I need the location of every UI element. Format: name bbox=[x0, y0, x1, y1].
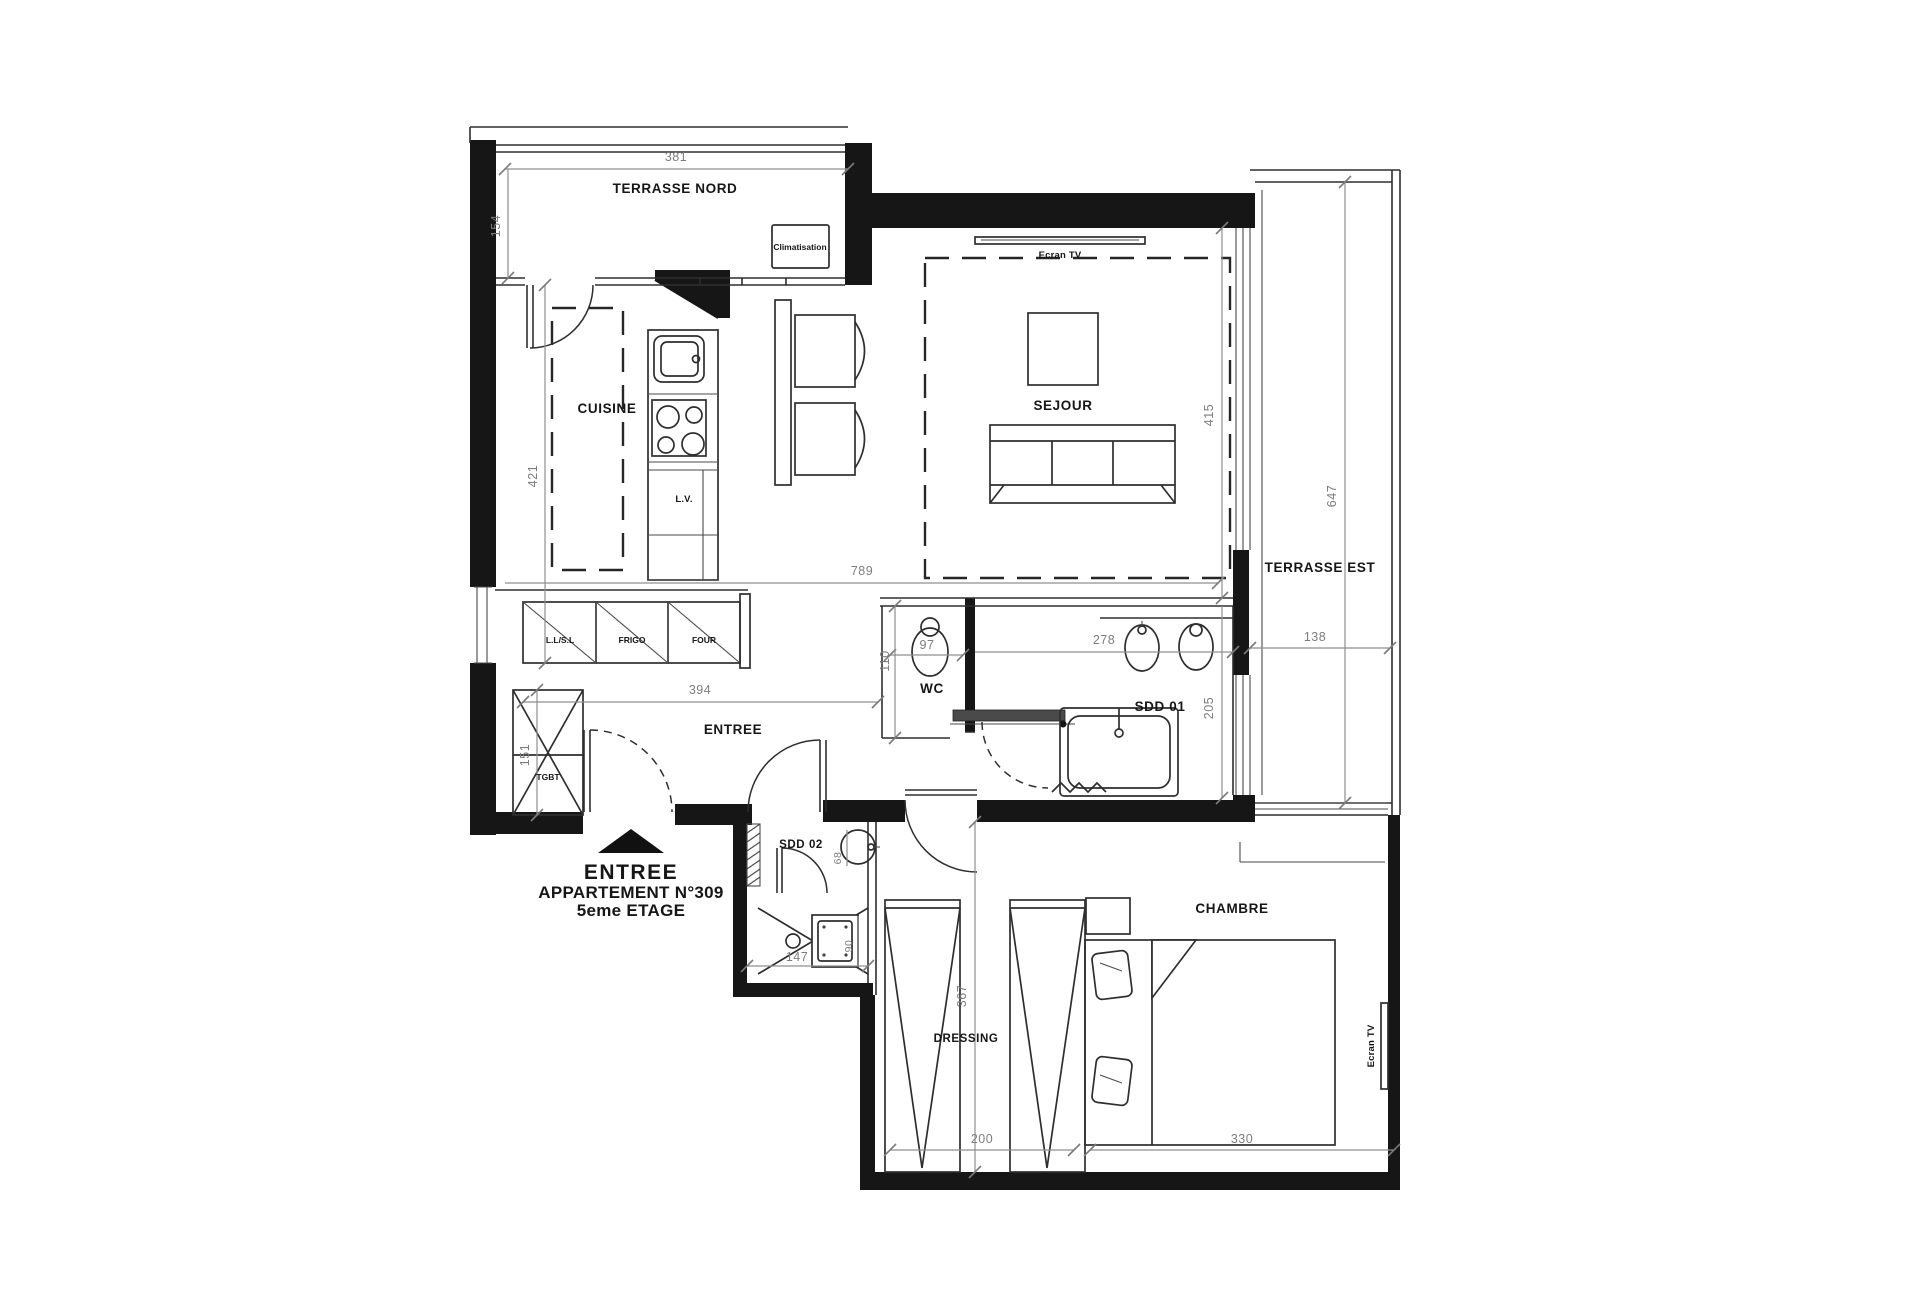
sofa-icon bbox=[990, 425, 1175, 503]
dim-sdd01-width: 278 bbox=[1093, 633, 1115, 647]
entrance-apartment: APPARTEMENT N°309 bbox=[538, 883, 723, 902]
dim-shower-width: 147 bbox=[786, 950, 808, 964]
dim-sdd02-basin: 68 bbox=[832, 852, 844, 865]
dim-tgbt-height: 151 bbox=[518, 744, 532, 766]
dim-wc-depth: 110 bbox=[878, 650, 892, 671]
door-entree-chambre-hall bbox=[748, 740, 826, 812]
terrasse-est-outline bbox=[1236, 170, 1400, 815]
dim-wc-width: 97 bbox=[920, 638, 935, 652]
climatisation-label: Climatisation bbox=[773, 242, 826, 252]
dim-cuisine-depth: 421 bbox=[526, 465, 540, 487]
door-dressing bbox=[905, 790, 977, 872]
furniture bbox=[513, 225, 1388, 1172]
dim-sdd01-depth: 205 bbox=[1202, 697, 1216, 719]
dimension-lines bbox=[499, 163, 1400, 1178]
window-chambre-top bbox=[1255, 803, 1388, 809]
cuisine-zone-dashed bbox=[552, 308, 623, 570]
room-label-entree: ENTREE bbox=[704, 722, 762, 737]
room-label-sdd01: SDD 01 bbox=[1135, 699, 1186, 714]
floor-plan-drawing: TERRASSE NORD SEJOUR TERRASSE EST CUISIN… bbox=[0, 0, 1920, 1309]
bar-table-icon bbox=[775, 300, 791, 485]
dimension-labels: 381 154 421 394 789 151 415 647 138 97 1… bbox=[489, 150, 1339, 1146]
room-label-chambre: CHAMBRE bbox=[1195, 901, 1268, 916]
dim-entree-width: 394 bbox=[689, 683, 711, 697]
kitchen-sink-icon bbox=[654, 336, 704, 382]
bathtub-icon bbox=[1060, 708, 1178, 796]
tv-chambre-icon bbox=[1381, 1003, 1388, 1089]
kitchen-counter bbox=[648, 330, 718, 580]
room-label-wc: WC bbox=[920, 681, 944, 696]
lv-label: L.V. bbox=[675, 494, 692, 505]
dim-chambre-width: 330 bbox=[1231, 1132, 1253, 1146]
room-label-sejour: SEJOUR bbox=[1033, 398, 1092, 413]
dim-sejour-depth: 415 bbox=[1202, 404, 1216, 426]
tv-chambre-label: Ecran TV bbox=[1366, 1024, 1377, 1067]
coffee-table-icon bbox=[1028, 313, 1098, 385]
room-label-cuisine: CUISINE bbox=[578, 401, 637, 416]
stove-icon bbox=[652, 400, 706, 456]
washbasin-icon bbox=[1179, 624, 1213, 670]
tv-sejour-label: Ecran TV bbox=[1039, 250, 1082, 261]
door-terrasse-cuisine bbox=[527, 285, 593, 348]
entrance-arrow-icon bbox=[598, 829, 664, 853]
dim-dressing-height: 367 bbox=[955, 985, 969, 1007]
room-label-terrasse-nord: TERRASSE NORD bbox=[613, 181, 738, 196]
room-label-sdd02: SDD 02 bbox=[779, 839, 823, 851]
sejour-zone-dashed bbox=[925, 258, 1230, 578]
wall-hatch bbox=[747, 824, 760, 886]
dim-dressing-width: 200 bbox=[971, 1132, 993, 1146]
tgbt-label: TGBT bbox=[536, 772, 560, 782]
dim-terrasse-nord-width: 381 bbox=[665, 150, 687, 164]
chair-icon bbox=[795, 403, 865, 475]
dim-terrasse-nord-depth: 154 bbox=[489, 215, 503, 237]
washbasin-icon bbox=[1125, 621, 1159, 671]
entrance-title: ENTREE bbox=[584, 861, 678, 884]
chambre-bracket bbox=[1240, 842, 1385, 862]
dim-shower-depth: 90 bbox=[843, 940, 855, 953]
dim-terrasse-est-height: 647 bbox=[1325, 485, 1339, 507]
tv-sejour-icon bbox=[975, 237, 1145, 244]
ll-sl-label: L.L/S.L bbox=[546, 635, 574, 645]
bed-icon bbox=[1085, 940, 1335, 1145]
four-label: FOUR bbox=[692, 635, 716, 645]
room-label-terrasse-est: TERRASSE EST bbox=[1265, 560, 1376, 575]
nightstand-icon bbox=[1086, 898, 1130, 934]
door-sdd02 bbox=[777, 848, 827, 893]
wardrobe-icon bbox=[1010, 900, 1085, 1172]
chair-icon bbox=[795, 315, 865, 387]
frigo-label: FRIGO bbox=[619, 635, 646, 645]
dim-sejour-band: 789 bbox=[851, 564, 873, 578]
floor-plan-canvas: TERRASSE NORD SEJOUR TERRASSE EST CUISIN… bbox=[0, 0, 1920, 1309]
dim-terrasse-est-width: 138 bbox=[1304, 630, 1326, 644]
room-label-dressing: DRESSING bbox=[934, 1033, 999, 1045]
door-entree-main bbox=[584, 730, 672, 812]
appliance-counter bbox=[495, 590, 750, 668]
window-west bbox=[474, 587, 492, 663]
entrance-floor: 5eme ETAGE bbox=[577, 901, 686, 920]
